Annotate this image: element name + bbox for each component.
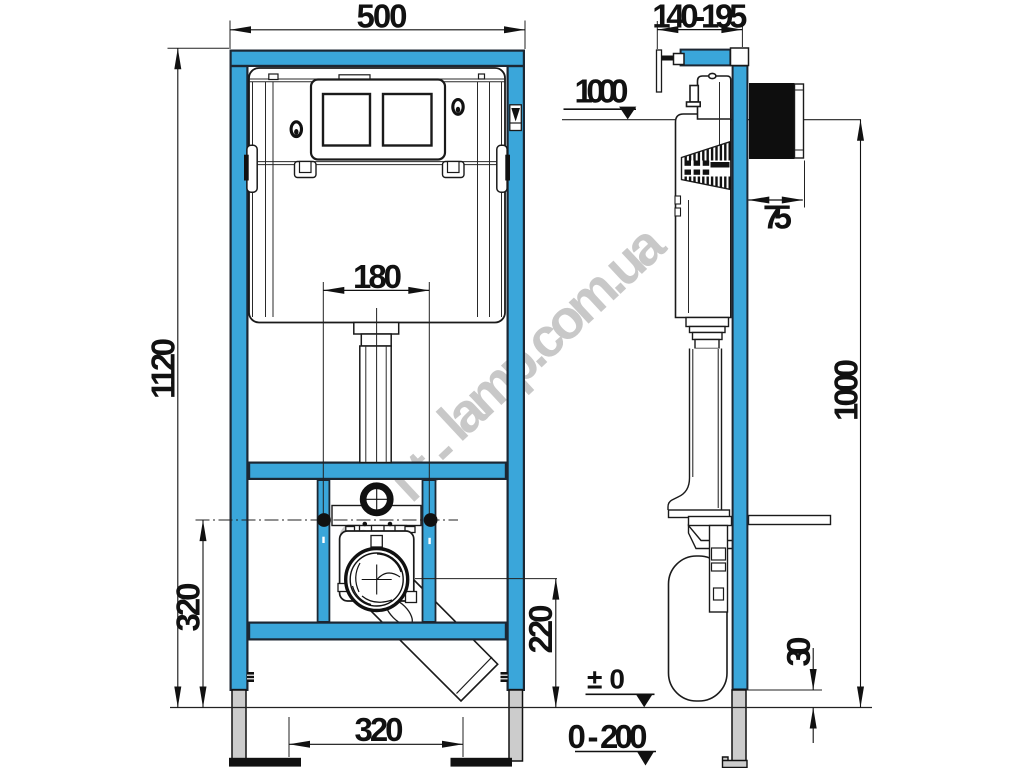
svg-text:1000: 1000 [575,73,629,110]
svg-text:500: 500 [357,0,408,35]
svg-text:320: 320 [170,583,207,632]
svg-text:75: 75 [763,199,792,236]
svg-text:140-195: 140-195 [652,0,747,35]
svg-text:0 - 200: 0 - 200 [568,718,648,755]
svg-text:220: 220 [522,605,559,654]
svg-text:320: 320 [355,711,404,748]
svg-text:1120: 1120 [145,338,182,399]
svg-text:30: 30 [780,637,817,667]
svg-text:180: 180 [353,258,402,295]
svg-text:1000: 1000 [828,359,865,421]
